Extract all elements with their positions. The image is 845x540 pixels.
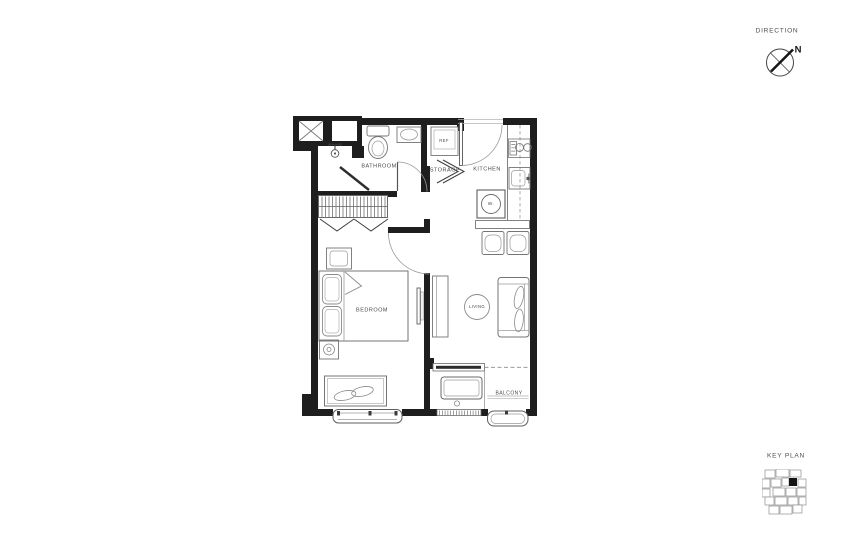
room-label-bathroom: BATHROOM <box>361 163 396 169</box>
pillows <box>323 275 342 337</box>
bathroom-sink <box>397 127 421 143</box>
sliding-door <box>433 364 529 410</box>
room-label-balcony: BALCONY <box>495 390 522 396</box>
bedroom-window <box>333 410 402 424</box>
entrance-door <box>458 120 503 166</box>
ac-unit <box>441 377 482 406</box>
wardrobe-bifold-doors <box>320 219 388 231</box>
room-label-bedroom: BEDROOM <box>356 307 388 313</box>
stove <box>509 139 532 158</box>
direction-title: DIRECTION <box>756 27 799 34</box>
key-plan-title: KEY PLAN <box>767 452 805 459</box>
nightstand <box>327 248 352 269</box>
floor-plan-page: BATHROOM STORAGE KITCHEN REF W. BEDROOM … <box>0 0 845 540</box>
room-label-washer: W. <box>488 201 494 206</box>
wardrobe <box>319 196 389 232</box>
balcony-railing <box>488 396 529 426</box>
room-label-kitchen: KITCHEN <box>473 166 501 172</box>
shower-head-icon <box>328 143 342 157</box>
key-plan-unit-highlight <box>789 478 797 486</box>
toilet <box>367 126 389 159</box>
blanket-fold <box>345 272 362 295</box>
tv-console <box>433 276 449 337</box>
shower-screen <box>340 167 369 190</box>
louver-vent <box>437 410 481 416</box>
dining-set <box>476 221 530 255</box>
stool <box>320 340 339 359</box>
walls <box>293 116 537 416</box>
floor-plan-drawing <box>288 110 544 432</box>
room-label-storage: STORAGE <box>430 167 460 173</box>
room-label-refrigerator: REF <box>439 139 449 144</box>
north-needle <box>771 50 793 72</box>
room-label-living: LIVING <box>469 305 485 310</box>
tv <box>417 288 423 324</box>
kitchen-sink <box>509 168 530 190</box>
floor-drain <box>454 401 459 406</box>
sofa <box>498 278 529 338</box>
bedroom-door <box>389 233 430 274</box>
north-label: N <box>795 45 802 55</box>
key-plan-map <box>762 469 808 517</box>
bench <box>325 376 387 406</box>
